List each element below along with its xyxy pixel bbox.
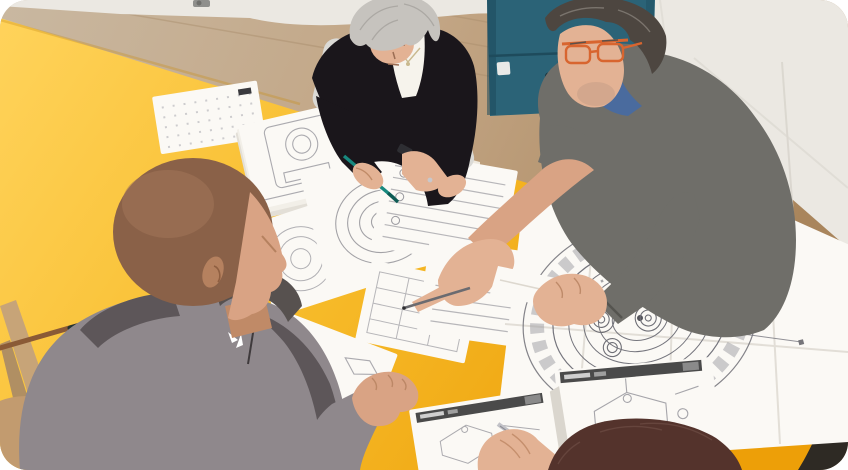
photo-team-reviewing-blueprints <box>0 0 848 470</box>
pencil-tip <box>402 306 406 310</box>
hair-highlight <box>122 170 214 238</box>
stubble <box>577 82 615 106</box>
cabinet-left-edge <box>487 0 496 115</box>
ring <box>428 178 433 183</box>
cabinet-label-square <box>497 62 511 76</box>
necklace-pendant <box>406 62 410 66</box>
table-hinge-fitting <box>193 0 210 7</box>
